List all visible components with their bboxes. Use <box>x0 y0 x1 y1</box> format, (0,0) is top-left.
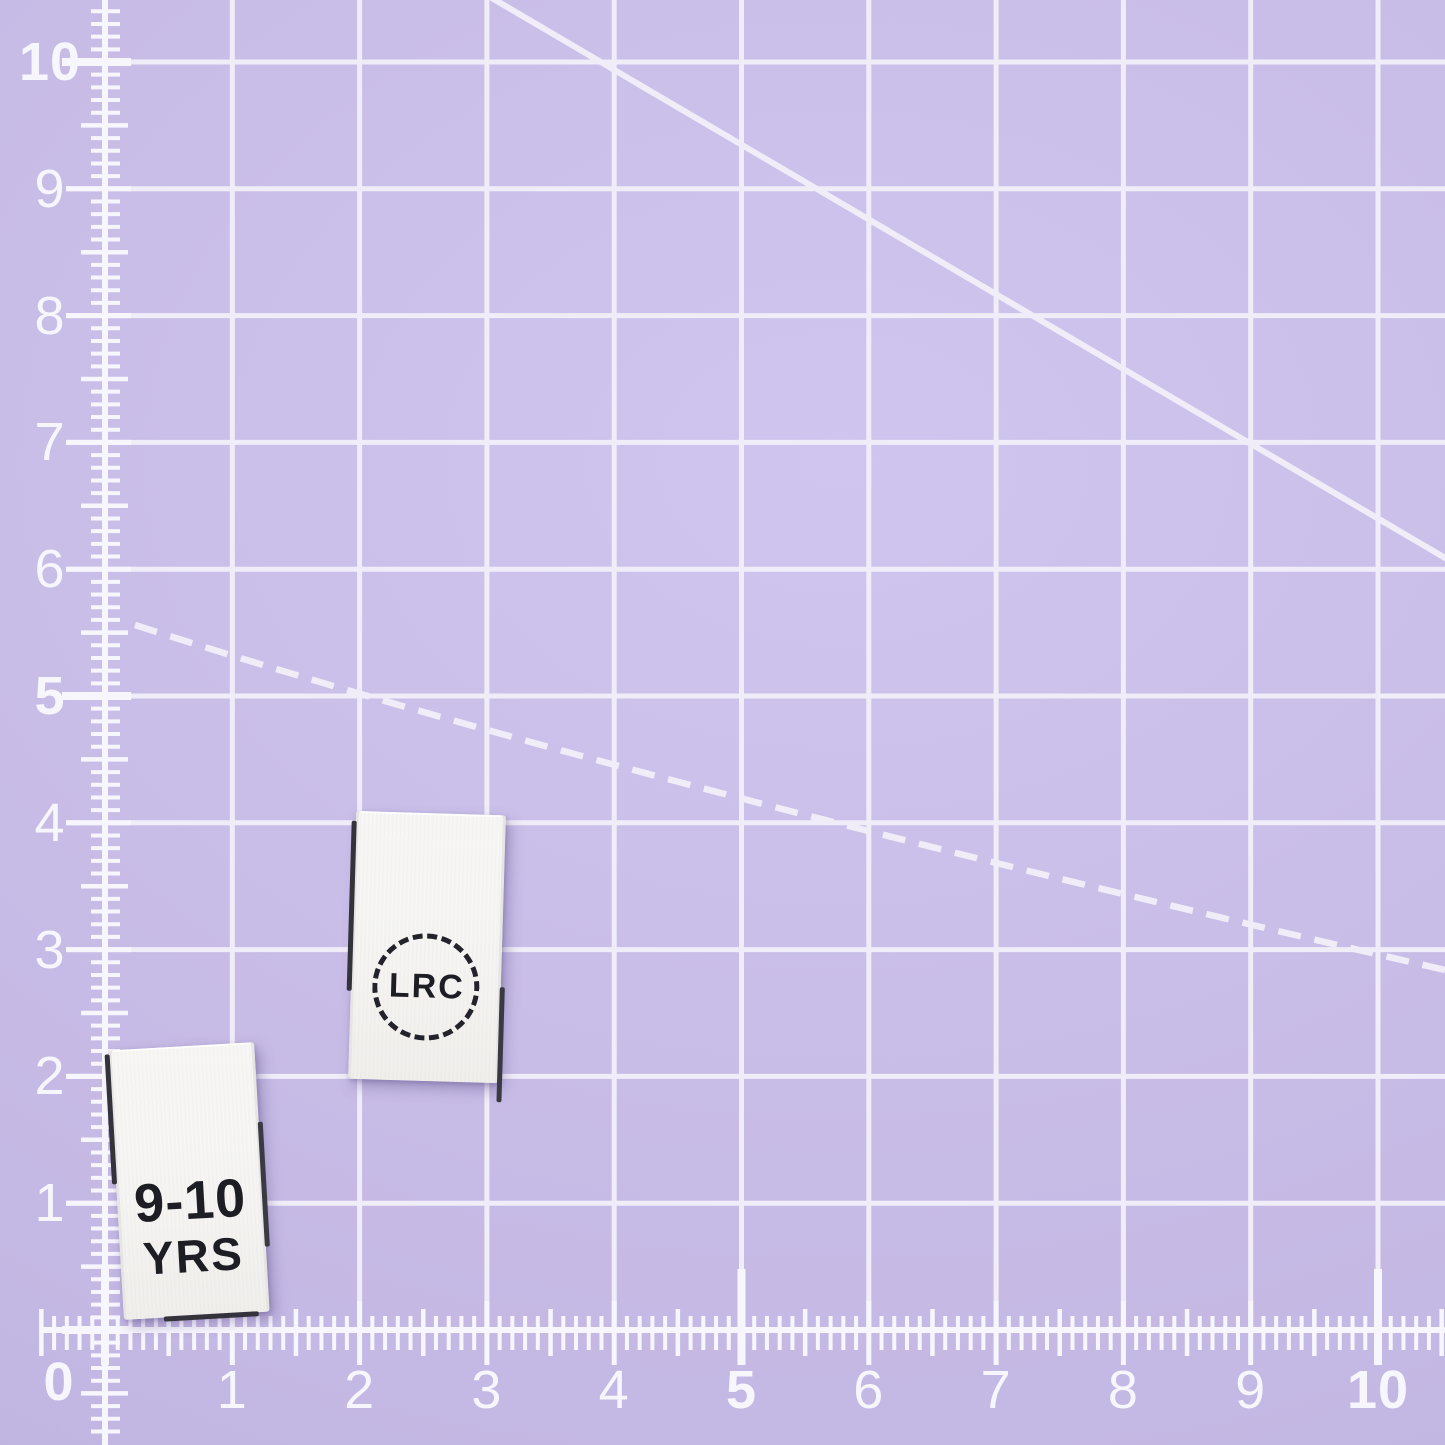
left-ruler-number-2: 2 <box>34 1045 65 1107</box>
bottom-ruler-number-10: 10 <box>1347 1359 1409 1421</box>
diagonal-bias-line <box>485 0 1445 562</box>
cutting-mat-photo: 10987654321 012345678910 LRC 9-10 YRS <box>0 0 1445 1445</box>
bottom-ruler-number-7: 7 <box>981 1359 1012 1421</box>
stitched-dashed-circle: LRC <box>371 932 481 1042</box>
size-woven-label: 9-10 YRS <box>108 1042 269 1320</box>
left-ruler-number-6: 6 <box>34 538 65 600</box>
left-ruler-number-5: 5 <box>34 665 65 727</box>
bottom-ruler-number-4: 4 <box>599 1359 630 1421</box>
bottom-ruler-number-6: 6 <box>853 1359 884 1421</box>
bottom-ruler-number-1: 1 <box>217 1359 248 1421</box>
size-label-text: 9-10 YRS <box>116 1170 268 1283</box>
left-ruler-number-1: 1 <box>34 1172 65 1234</box>
bottom-ruler-number-2: 2 <box>344 1359 375 1421</box>
left-ruler-number-10: 10 <box>19 31 81 93</box>
brand-label-text: LRC <box>386 966 465 1007</box>
bottom-ruler-number-3: 3 <box>471 1359 502 1421</box>
bottom-ruler-number-9: 9 <box>1235 1359 1266 1421</box>
bottom-ruler-number-0: 0 <box>43 1351 74 1413</box>
size-label-line2: YRS <box>119 1229 267 1283</box>
left-ruler-number-7: 7 <box>34 411 65 473</box>
bottom-ruler-number-8: 8 <box>1108 1359 1139 1421</box>
left-ruler-number-4: 4 <box>34 792 65 854</box>
left-ruler-number-8: 8 <box>34 285 65 347</box>
bottom-ruler-number-5: 5 <box>726 1359 757 1421</box>
size-label-line1: 9-10 <box>116 1170 265 1232</box>
left-ruler-number-3: 3 <box>34 919 65 981</box>
left-ruler-number-9: 9 <box>34 158 65 220</box>
brand-woven-label: LRC <box>348 811 506 1083</box>
